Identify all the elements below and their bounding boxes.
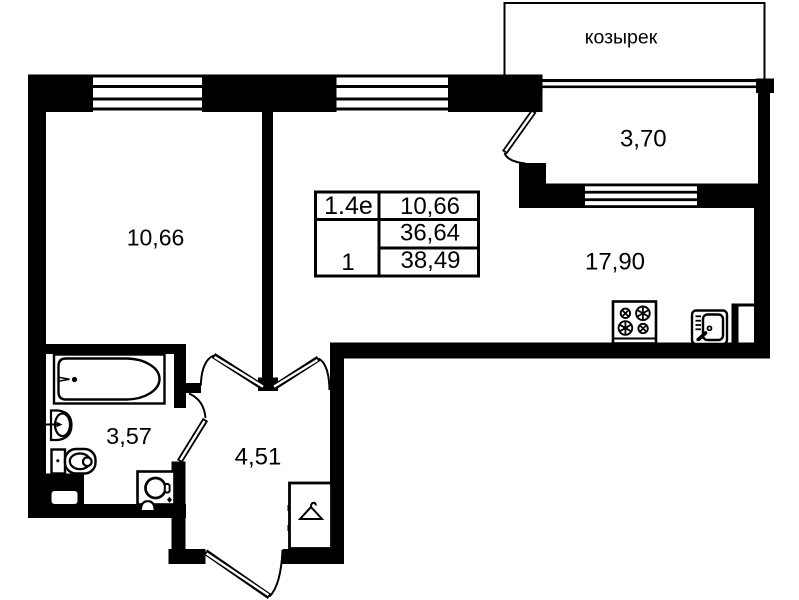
- svg-text:1: 1: [341, 249, 354, 276]
- svg-text:36,64: 36,64: [400, 220, 460, 247]
- svg-text:4,51: 4,51: [235, 444, 282, 471]
- svg-text:1.4е: 1.4е: [324, 192, 373, 220]
- svg-text:38,49: 38,49: [400, 247, 460, 274]
- svg-text:10,66: 10,66: [127, 225, 185, 251]
- svg-text:3,57: 3,57: [106, 423, 152, 449]
- svg-text:3,70: 3,70: [620, 125, 667, 152]
- svg-text:17,90: 17,90: [585, 249, 645, 276]
- svg-text:10,66: 10,66: [400, 193, 460, 220]
- svg-text:козырек: козырек: [585, 27, 658, 49]
